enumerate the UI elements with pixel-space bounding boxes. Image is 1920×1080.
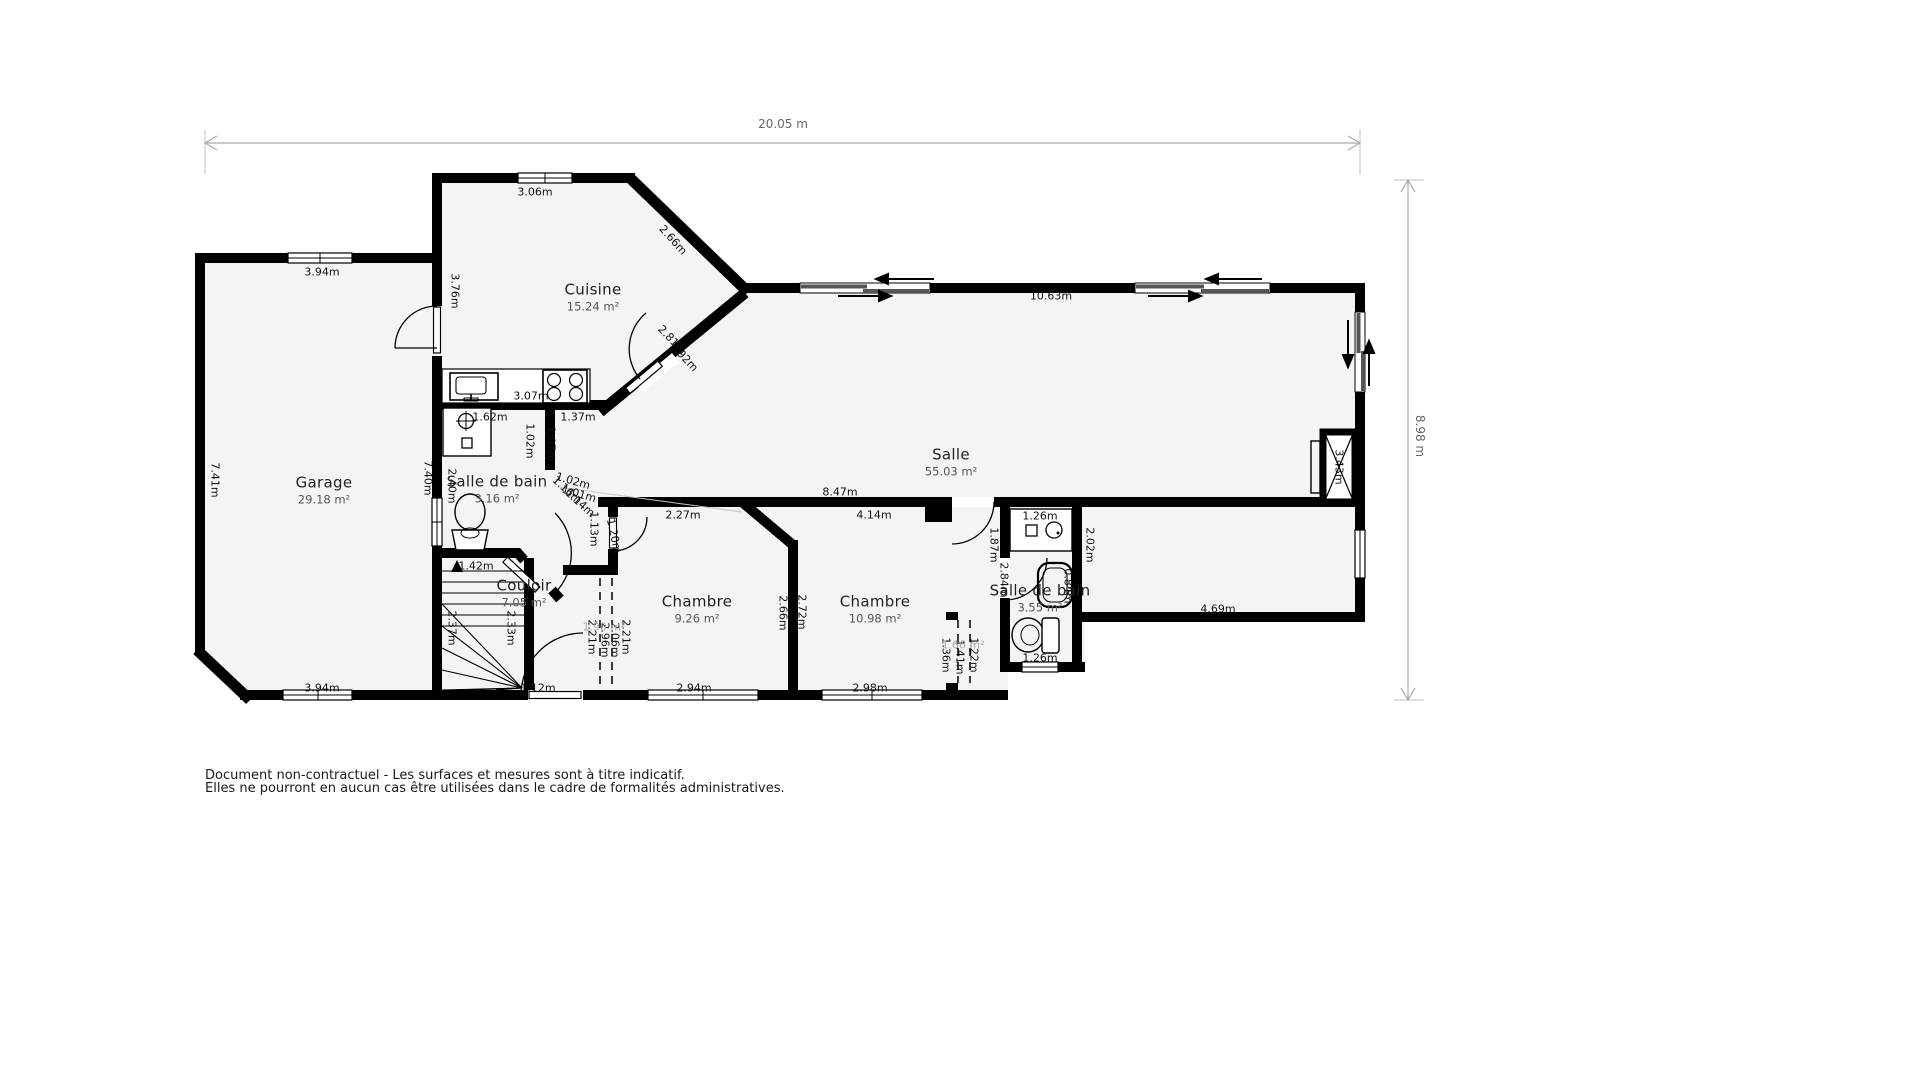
window-bedroom2-bottom [822,690,922,700]
wall-bath2-left-lower [1000,598,1010,672]
wall-garage-kitchen-shared [432,173,442,700]
wall-bath2-left-upper [1000,507,1010,558]
kitchen-counter [442,369,590,403]
wall-bath1-door-stub-a [516,551,524,560]
wall-bedroom-divider [788,540,798,690]
wall-closet2-stub-top [946,612,958,620]
wall-living-bottom-right [1072,612,1365,622]
floorplan-drawing [0,0,1920,1080]
sliding-door-living-top-right [1135,283,1270,293]
wall-closet-stub [563,565,618,575]
window-garage-bottom [283,690,352,700]
door-panel-hallway [529,692,581,699]
window-living-right [1355,530,1365,578]
window-bath1-left [432,498,442,546]
wall-bath1-right [545,405,555,470]
window-bedroom1-bottom [648,690,758,700]
wall-closet2-stub-bottom [946,683,958,691]
window-bath2-bottom [1022,662,1058,672]
window-garage-top [288,253,352,263]
door-panel-bedroom1 [610,518,617,548]
floorplan-page: { "dimensions": { "overall_width_label":… [0,0,1920,1080]
sliding-door-living-top-left [800,283,930,293]
vanity-counter [1010,509,1072,551]
dimension-top [205,130,1360,174]
wall-bath2-right [1072,507,1082,672]
shower-tray [443,408,491,456]
wall-bedroom1-left-upper [608,507,618,517]
wall-garage-left [195,253,205,655]
door-gap-bath2 [1000,558,1010,598]
wall-hall-stub [925,507,952,522]
dimension-right [1394,180,1424,700]
door-panel-garage [434,307,441,353]
window-kitchen-top [518,173,572,183]
door-gap-hall [952,497,994,507]
